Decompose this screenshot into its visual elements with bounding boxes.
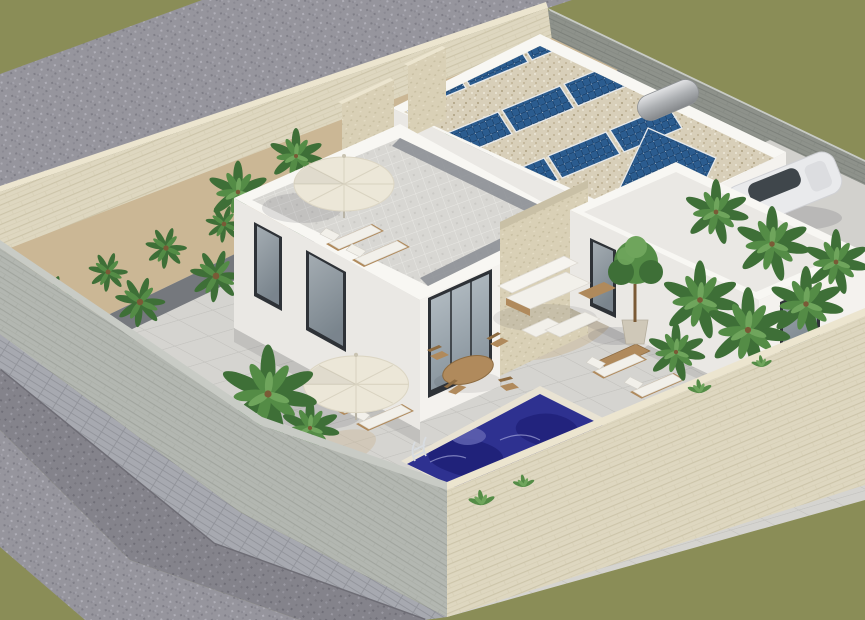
plant-pot [622, 320, 648, 344]
villa-render [0, 0, 865, 620]
render-viewport [0, 0, 865, 620]
window [254, 222, 282, 311]
